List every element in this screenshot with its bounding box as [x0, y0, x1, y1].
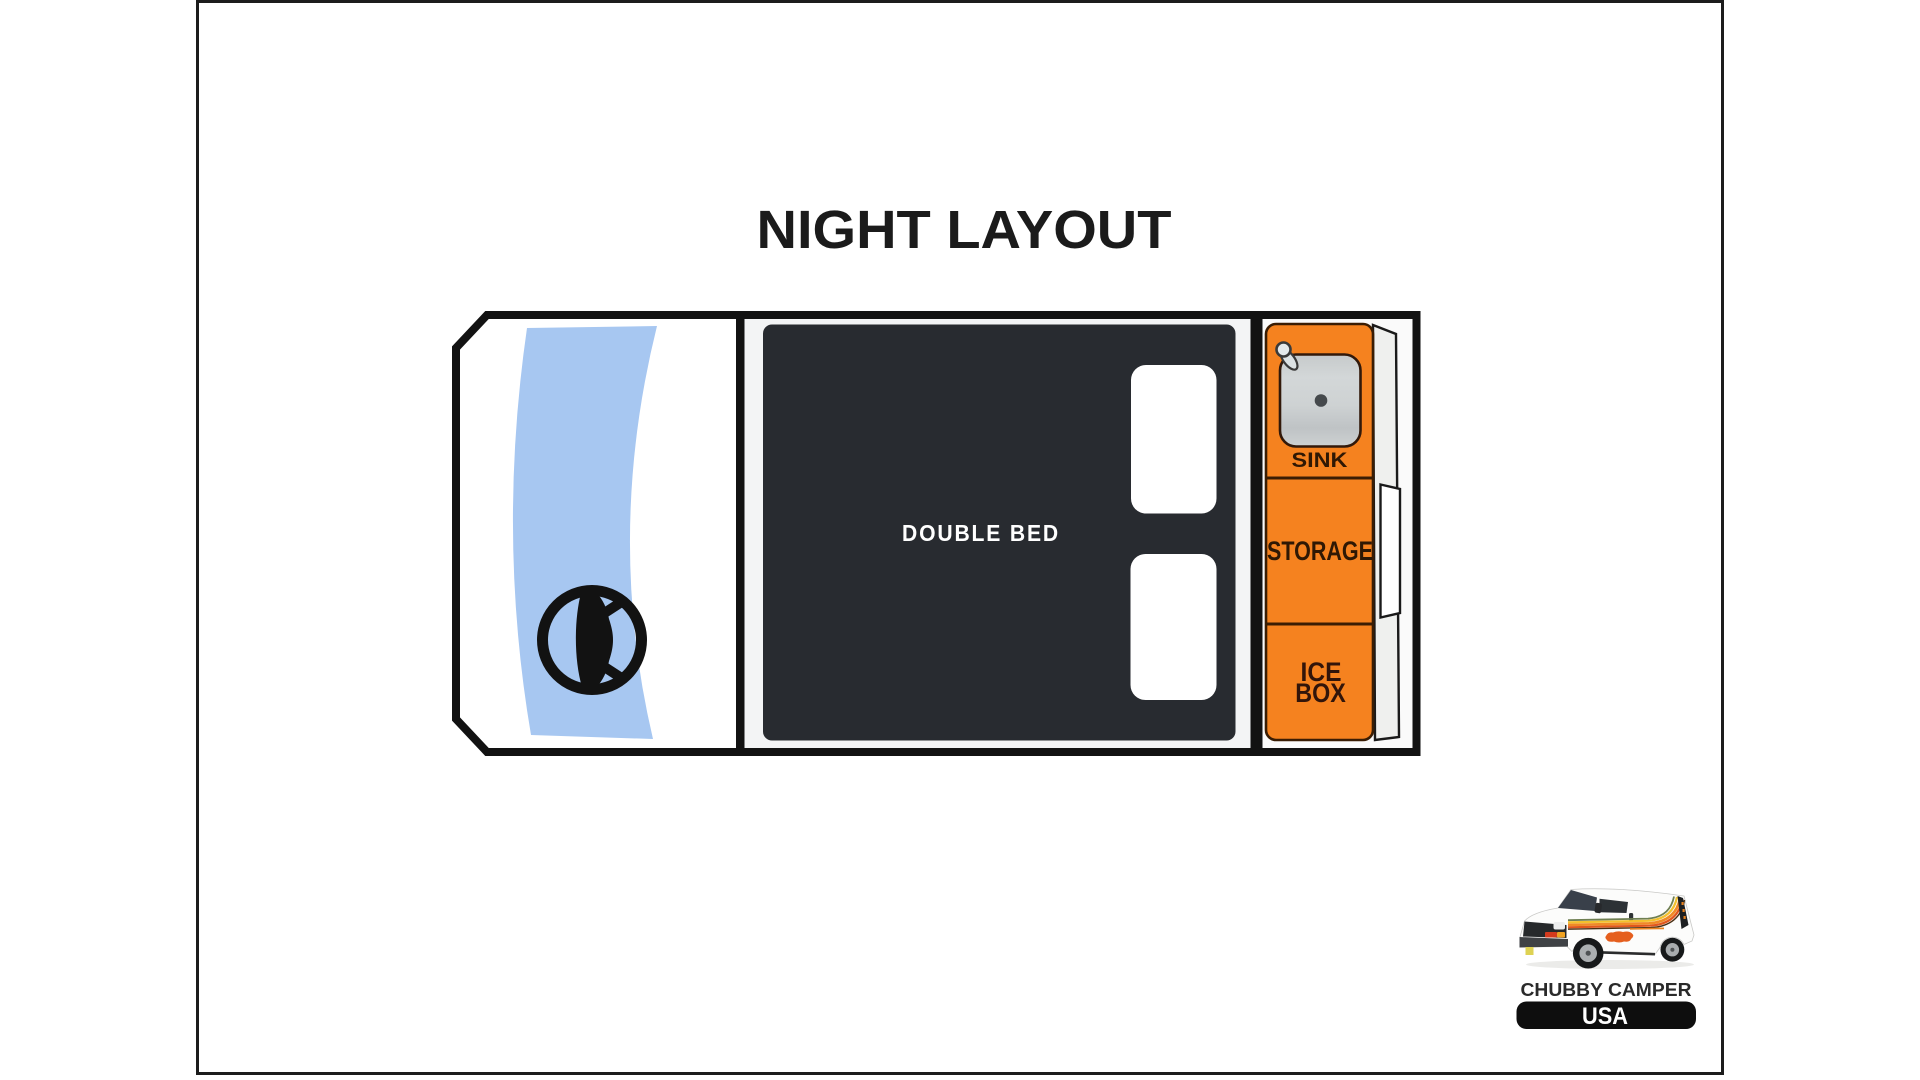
- svg-text:USA: USA: [1582, 1003, 1628, 1030]
- svg-text:STORAGE: STORAGE: [1267, 536, 1373, 566]
- svg-text:CHUBBY CAMPER: CHUBBY CAMPER: [1521, 980, 1692, 1000]
- svg-text:NIGHT LAYOUT: NIGHT LAYOUT: [757, 200, 1172, 260]
- svg-text:DOUBLE BED: DOUBLE BED: [902, 520, 1060, 546]
- svg-text:SINK: SINK: [1292, 449, 1348, 472]
- svg-text:BOX: BOX: [1295, 678, 1346, 708]
